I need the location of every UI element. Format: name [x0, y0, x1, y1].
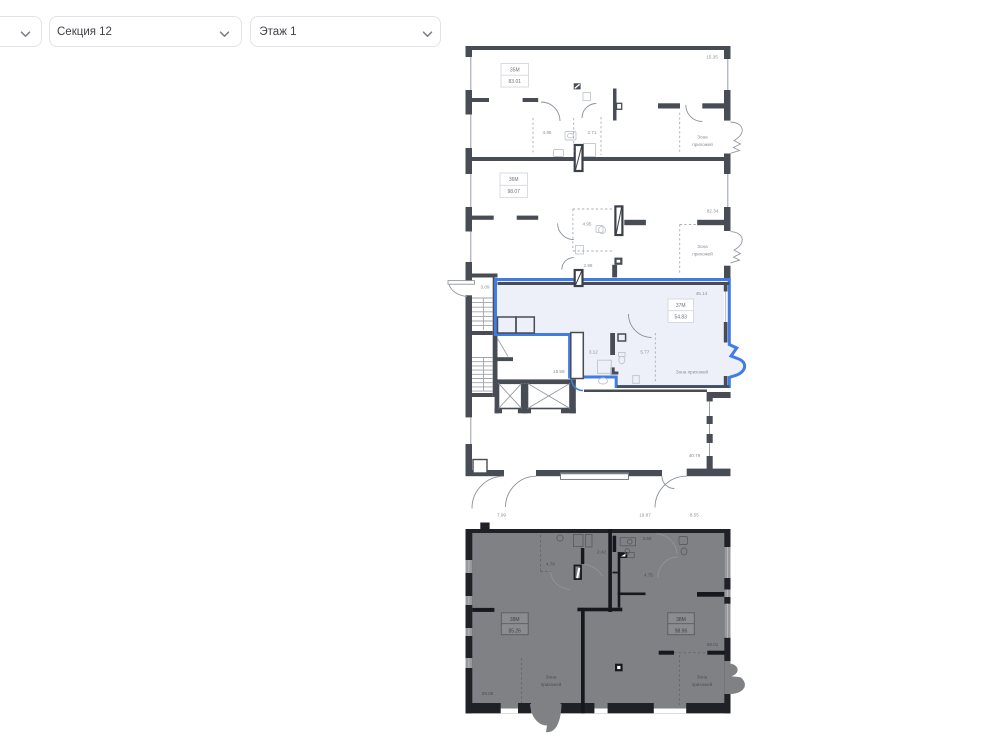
- svg-text:2.98: 2.98: [584, 263, 593, 268]
- svg-text:прихожей: прихожей: [692, 681, 713, 687]
- svg-text:3.58: 3.58: [643, 536, 652, 541]
- svg-text:15.35: 15.35: [706, 55, 718, 60]
- svg-text:19.87: 19.87: [639, 513, 651, 518]
- svg-text:54.83: 54.83: [674, 315, 687, 321]
- svg-text:Зона прихожей: Зона прихожей: [676, 369, 709, 375]
- svg-text:98.07: 98.07: [507, 189, 520, 195]
- svg-text:36М: 36М: [509, 177, 519, 183]
- svg-text:3.09: 3.09: [481, 285, 490, 290]
- svg-text:35М: 35М: [510, 68, 520, 74]
- svg-text:Зона: Зона: [546, 675, 557, 680]
- svg-text:85.26: 85.26: [508, 628, 521, 634]
- svg-text:Зона: Зона: [697, 675, 708, 680]
- svg-text:45.14: 45.14: [696, 291, 708, 296]
- svg-text:8.55: 8.55: [690, 513, 699, 518]
- svg-text:Зона: Зона: [697, 135, 708, 140]
- svg-text:98.96: 98.96: [675, 628, 688, 634]
- svg-text:4.95: 4.95: [543, 130, 552, 135]
- svg-text:прихожей: прихожей: [692, 141, 713, 147]
- svg-text:5.77: 5.77: [640, 350, 649, 355]
- svg-text:15.59: 15.59: [553, 369, 565, 374]
- svg-text:7.99: 7.99: [497, 513, 506, 518]
- svg-text:38М: 38М: [676, 617, 686, 623]
- svg-text:59.01: 59.01: [707, 642, 719, 647]
- svg-text:прихожей: прихожей: [692, 251, 713, 257]
- svg-text:3.12: 3.12: [589, 350, 598, 355]
- svg-text:прихожей: прихожей: [541, 681, 562, 687]
- svg-text:4.75: 4.75: [644, 573, 653, 578]
- svg-text:4.95: 4.95: [583, 222, 592, 227]
- svg-text:59.08: 59.08: [482, 691, 494, 696]
- svg-text:2.71: 2.71: [588, 130, 597, 135]
- svg-text:37М: 37М: [676, 303, 686, 309]
- svg-text:83.01: 83.01: [509, 79, 522, 85]
- svg-text:4.76: 4.76: [546, 562, 555, 567]
- svg-text:82.34: 82.34: [707, 209, 719, 214]
- svg-text:2.42: 2.42: [597, 550, 606, 555]
- svg-text:40.79: 40.79: [689, 453, 701, 458]
- svg-text:Зона: Зона: [697, 244, 708, 249]
- svg-text:39М: 39М: [510, 617, 520, 623]
